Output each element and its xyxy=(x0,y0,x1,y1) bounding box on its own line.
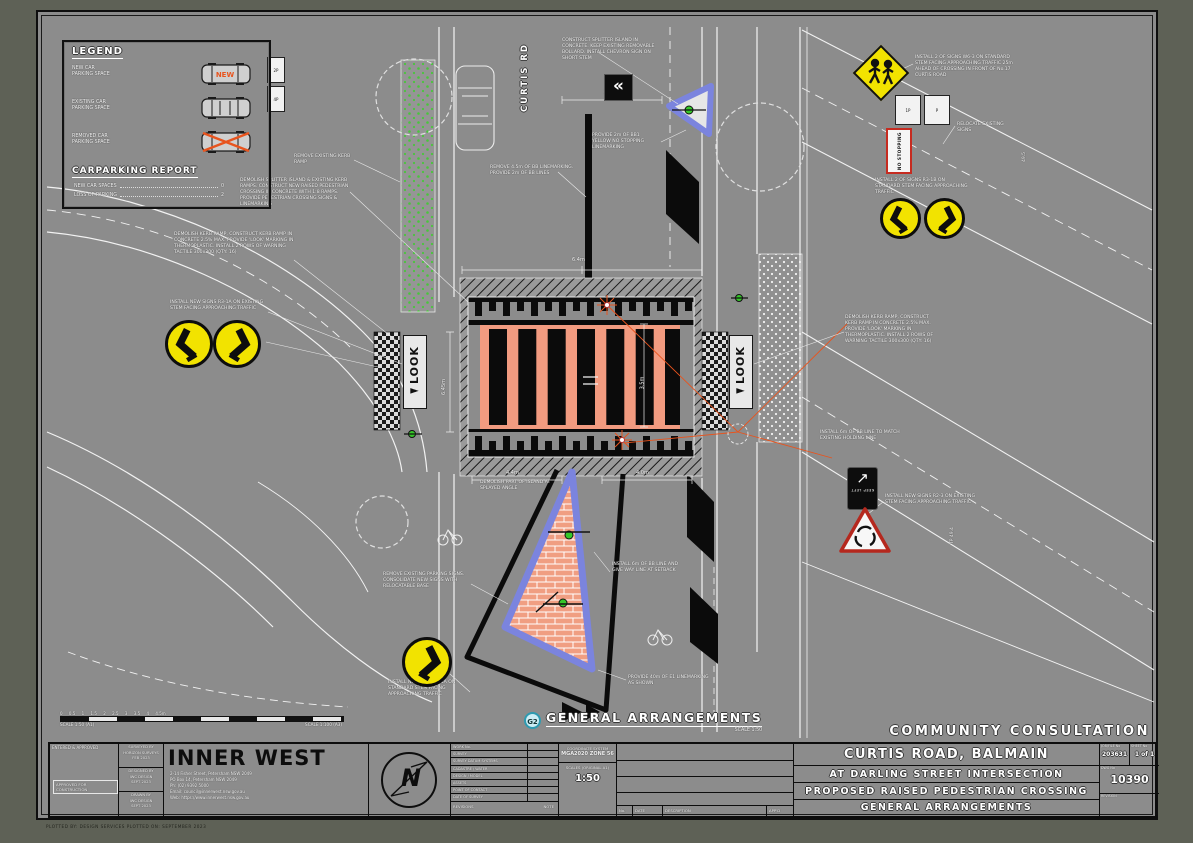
carparking-report-title: CARPARKING REPORT xyxy=(72,166,198,178)
pedestrians-icon xyxy=(863,55,899,91)
designed-by-date: SEPT 2023 xyxy=(131,780,151,784)
scale-bar: 0 0.5 1 1.5 2 2.5 3 3.5 4 4.5m SCALE 1:5… xyxy=(60,711,360,727)
level-tp-49-4: TP 49.4 xyxy=(950,527,955,544)
revision-label: REVISION xyxy=(1101,794,1117,798)
detail-title: GENERAL ARRANGEMENTS xyxy=(546,710,762,727)
dim-4-4m: 4.4m xyxy=(506,470,519,476)
annotation-relocate-signs: RELOCATE EXISTING SIGNS xyxy=(957,122,1019,134)
field-label: SURVEY DATUM SYSTEMS xyxy=(453,759,498,763)
annotation-remove-parking-signs: REMOVE EXISTING PARKING SIGNS. CONSOLIDA… xyxy=(383,572,475,590)
legend-label-line2: PARKING SPACE xyxy=(72,106,110,111)
annotation-remove-kerb-ramp: REMOVE EXISTING KERB RAMP xyxy=(294,154,356,166)
parking-sign-small-d: P xyxy=(924,95,950,125)
drawn-by-box: DRAWN BY IWC DESIGN SEPT 2023 xyxy=(119,792,163,816)
field-row: DATE OF SURVEY xyxy=(451,794,558,801)
detail-title-group: G2 GENERAL ARRANGEMENTS SCALE 1:50 xyxy=(524,710,762,733)
north-letter: N xyxy=(401,764,421,792)
look-road-marking-right: ◄LOOK xyxy=(729,335,753,409)
surveyed-by-box: SURVEYED BY HORIZON SURVEYS FEB 2023 xyxy=(119,744,163,768)
legend-title: LEGEND xyxy=(72,46,123,59)
field-row: POINT OF CONTACT xyxy=(451,787,558,794)
project-arrangements: GENERAL ARRANGEMENTS xyxy=(794,800,1099,816)
field-row: SURVEY DATUM SYSTEMS xyxy=(451,758,558,765)
scale-label-a3: SCALE 1:100 (A3) xyxy=(305,722,342,727)
top-splitter-island xyxy=(669,86,711,134)
look-road-marking-left: ◄LOOK xyxy=(403,335,427,409)
triangle-island xyxy=(467,470,623,710)
field-row: ASSETS xyxy=(451,780,558,787)
drawing-sheet: LEGEND NEW CAR PARKING SPACE NEW EXISTIN… xyxy=(36,10,1158,820)
dwg-number-value: 10390 xyxy=(1100,773,1159,786)
council-address: 2-14 Fisher Street, Petersham NSW 2049 P… xyxy=(170,771,368,801)
car-icon-existing xyxy=(198,96,256,120)
job-number-value: 203631 xyxy=(1100,751,1129,758)
report-row-new-spaces: NEW CAR SPACES 0 xyxy=(74,184,224,189)
field-label: SURVEY xyxy=(453,752,467,756)
drawing-numbers-cell: JOB/FILE No 203631 SHEET No 1 of 1 DWG N… xyxy=(1100,744,1159,816)
designed-by-box: DESIGNED BY IWC DESIGN SEPT 2023 xyxy=(119,768,163,792)
revision-table-cell: No. DATE DESCRIPTION APP'D xyxy=(617,744,794,816)
dim-4-0m: 4.0m xyxy=(636,470,649,476)
field-label: DATE OF SURVEY xyxy=(453,795,483,799)
dim-6-4m: 6.4m xyxy=(572,257,585,263)
revision-box: REVISION xyxy=(1100,794,1159,816)
surveyed-by-date: FEB 2023 xyxy=(132,756,150,760)
sheet-number-box: SHEET No 1 of 1 xyxy=(1130,744,1159,766)
project-road: CURTIS ROAD, BALMAIN xyxy=(794,744,1099,766)
designed-by-label: DESIGNED BY xyxy=(128,769,153,773)
annotation-splitter-island: CONSTRUCT SPLITTER ISLAND IN CONCRETE. K… xyxy=(562,38,662,62)
drawing-canvas: LEGEND NEW CAR PARKING SPACE NEW EXISTIN… xyxy=(0,0,1193,843)
detail-title-wrap: GENERAL ARRANGEMENTS SCALE 1:50 xyxy=(546,710,762,733)
annotation-remove-bb-line: REMOVE 4.5m OF BB LINEMARKING. PROVIDE 2… xyxy=(490,165,578,177)
approved-for-construction-label: APPROVED FOR CONSTRUCTION xyxy=(53,780,118,794)
sheet-number-label: SHEET No xyxy=(1131,744,1147,748)
chevron-sign-icon: « xyxy=(604,74,633,101)
scale-bar-labels: SCALE 1:50 (A1) SCALE 1:100 (A3) xyxy=(60,722,342,727)
crossing-ball-sign-left-2 xyxy=(213,320,261,368)
level-49-5: 49.5 xyxy=(1022,152,1027,162)
coordinate-scale-cell: COORDINATE SYSTEM MGA2020 ZONE 56 SCALES… xyxy=(559,744,617,816)
council-logo-text: INNER WEST xyxy=(168,748,368,769)
detail-scale: SCALE 1:50 xyxy=(546,728,762,733)
annotation-kerb-ramp-right: DEMOLISH KERB RAMP, CONSTRUCT KERB RAMP … xyxy=(845,315,942,345)
raised-crossing xyxy=(460,278,702,476)
annotation-kerb-ramp-left: DEMOLISH KERB RAMP, CONSTRUCT KERB RAMP … xyxy=(174,232,296,256)
rev-col-approved: APP'D xyxy=(767,806,793,816)
revision-rule xyxy=(617,776,793,777)
report-row-loss: LOSS OF PARKING 2 xyxy=(74,193,224,198)
project-intersection: AT DARLING STREET INTERSECTION xyxy=(794,766,1099,783)
roundabout-warning-sign xyxy=(838,506,892,558)
parking-sign-small-c: 1P xyxy=(895,95,921,125)
legend-item-removed-parking: REMOVED CAR PARKING SPACE xyxy=(72,128,262,160)
dim-3-5m: 3.5m xyxy=(639,377,645,390)
rev-col-description: DESCRIPTION xyxy=(663,806,767,816)
revision-header-row: No. DATE DESCRIPTION APP'D xyxy=(617,805,793,816)
report-value: 2 xyxy=(221,193,224,198)
approvals-cell: ENTERED & APPROVED APPROVED FOR CONSTRUC… xyxy=(50,744,119,816)
keep-left-arrow-icon: ↗ xyxy=(848,468,877,488)
field-label: POINT OF CONTACT xyxy=(453,788,487,792)
field-row: WORK No. xyxy=(451,744,558,751)
scale-label-a1: SCALE 1:50 (A1) xyxy=(60,722,94,727)
detail-badge: G2 xyxy=(524,712,541,729)
note-label: NOTE xyxy=(543,804,554,816)
plot-footer: PLOTTED BY: DESIGN SERVICES PLOTTED ON: … xyxy=(46,824,206,829)
title-block: ENTERED & APPROVED APPROVED FOR CONSTRUC… xyxy=(48,742,1157,818)
verge-stipple-green xyxy=(401,60,435,312)
project-title-cell: CURTIS ROAD, BALMAIN AT DARLING STREET I… xyxy=(794,744,1100,816)
surveyed-by-label: SURVEYED BY xyxy=(128,745,153,749)
annotation-splay-island: DEMOLISH PART OF ISLAND AT SPLAYED ANGLE xyxy=(480,480,552,492)
field-label: WORK No. xyxy=(453,745,471,749)
verge-stipple-white xyxy=(759,254,802,442)
annotation-bb-holding-line: INSTALL 6m OF BB LINE TO MATCH EXISTING … xyxy=(820,430,904,442)
community-consultation-stamp: COMMUNITY CONSULTATION xyxy=(810,724,1150,739)
pedestrian-warning-diamond-sign xyxy=(852,44,910,102)
rev-col-no: No. xyxy=(617,806,633,816)
field-row: CADASTRE / WATER xyxy=(451,766,558,773)
fields-footer: REVISIONS NOTE xyxy=(451,802,558,816)
dim-6-45m: 6.45m xyxy=(441,379,447,395)
dotted-leader xyxy=(120,193,218,197)
drawn-by-label: DRAWN BY xyxy=(131,793,151,797)
dotted-leader xyxy=(120,184,218,188)
field-label: DESIGN / MODEL xyxy=(453,774,483,778)
crossing-ball-sign-bottom xyxy=(402,637,452,687)
car-icon-removed xyxy=(198,130,256,154)
legend-item-label: NEW CAR PARKING SPACE xyxy=(72,66,110,79)
annotation-e1-linemarking: PROVIDE 40m OF E1 LINEMARKING AS SHOWN xyxy=(628,675,710,687)
parked-car xyxy=(456,66,494,150)
crossing-ball-sign-right-1 xyxy=(880,198,921,239)
legend-item-label: REMOVED CAR PARKING SPACE xyxy=(72,134,110,147)
no-stopping-text: NO STOPPING xyxy=(897,132,902,170)
field-label: CADASTRE / WATER xyxy=(453,767,487,771)
field-label: ASSETS xyxy=(453,781,466,785)
north-arrow: N xyxy=(379,750,439,814)
annotation-r23-signs: INSTALL NEW SIGNS R2-3 ON EXISTING STEM … xyxy=(885,494,975,506)
crossing-ball-sign-right-2 xyxy=(924,198,965,239)
survey-fields-cell: WORK No. SURVEY SURVEY DATUM SYSTEMS CAD… xyxy=(451,744,559,816)
street-label-curtis-rd: CURTIS RD xyxy=(520,30,530,112)
job-number-box: JOB/FILE No 203631 xyxy=(1100,744,1130,766)
scales-label: SCALES (ORIGINAL A1) xyxy=(559,762,616,770)
legend-label-line2: PARKING SPACE xyxy=(72,72,110,77)
north-arrow-cell: N xyxy=(369,744,451,816)
dwg-number-label: DWG No xyxy=(1101,766,1115,770)
drawn-by-name: IWC DESIGN xyxy=(130,799,153,803)
field-row: DESIGN / MODEL xyxy=(451,773,558,780)
report-label: NEW CAR SPACES xyxy=(74,184,117,189)
annotation-giveway-line: INSTALL 6m OF BB LINE AND GIVE WAY LINE … xyxy=(612,562,686,574)
crossing-ball-sign-left-1 xyxy=(165,320,213,368)
annotation-w63-signs: INSTALL 2 OF SIGNS W6-3 ON STANDARD STEM… xyxy=(915,55,1017,79)
legend-label-line1: NEW CAR xyxy=(72,66,95,71)
annotation-bb1-line: PROVIDE 2m OF BB1 YELLOW NO STOPPING LIN… xyxy=(592,133,658,151)
legend-item-label: EXISTING CAR PARKING SPACE xyxy=(72,100,110,113)
rev-col-date: DATE xyxy=(633,806,663,816)
surveyed-by-name: HORIZON SURVEYS xyxy=(123,751,159,755)
project-crossing: PROPOSED RAISED PEDESTRIAN CROSSING xyxy=(794,783,1099,800)
report-value: 0 xyxy=(221,184,224,189)
revisions-label: REVISIONS xyxy=(453,804,474,816)
legend-label-line1: EXISTING CAR xyxy=(72,100,106,105)
svg-text:NEW: NEW xyxy=(216,71,235,79)
legend-item-existing-parking: EXISTING CAR PARKING SPACE xyxy=(72,94,262,126)
scales-value: 1:50 xyxy=(559,773,616,784)
field-row: SURVEY xyxy=(451,751,558,758)
keep-left-text: KEEP LEFT xyxy=(848,488,877,492)
dwg-number-box: DWG No 10390 xyxy=(1100,766,1159,794)
annotation-signs-r31b-right: INSTALL 2 OF SIGNS R3-1B ON STANDARD STE… xyxy=(875,178,969,196)
prepared-by-cell: SURVEYED BY HORIZON SURVEYS FEB 2023 DES… xyxy=(119,744,164,816)
report-label: LOSS OF PARKING xyxy=(74,193,117,198)
sheet-number-value: 1 of 1 xyxy=(1130,751,1159,758)
road-curves-left xyxy=(47,187,432,707)
designed-by-name: IWC DESIGN xyxy=(130,775,153,779)
entered-approved-label: ENTERED & APPROVED xyxy=(52,745,98,750)
drawn-by-date: SEPT 2023 xyxy=(131,804,151,808)
car-icon-new: NEW xyxy=(198,62,256,86)
council-identity-cell: INNER WEST 2-14 Fisher Street, Petersham… xyxy=(164,744,369,816)
revision-rule xyxy=(617,792,793,793)
annotation-signs-r31a-left: INSTALL NEW SIGNS R3-1A ON EXISTING STEM… xyxy=(170,300,266,312)
keep-left-sign: ↗ KEEP LEFT xyxy=(847,467,878,510)
no-stopping-sign: NO STOPPING xyxy=(886,128,912,174)
job-number-label: JOB/FILE No xyxy=(1101,744,1120,748)
legend-label-line2: PARKING SPACE xyxy=(72,140,110,145)
coordinate-system-value: MGA2020 ZONE 56 xyxy=(559,751,616,757)
legend-label-line1: REMOVED CAR xyxy=(72,134,108,139)
legend-panel: LEGEND NEW CAR PARKING SPACE NEW EXISTIN… xyxy=(62,40,271,209)
legend-item-new-parking: NEW CAR PARKING SPACE NEW xyxy=(72,60,262,92)
revision-rule xyxy=(617,760,793,761)
